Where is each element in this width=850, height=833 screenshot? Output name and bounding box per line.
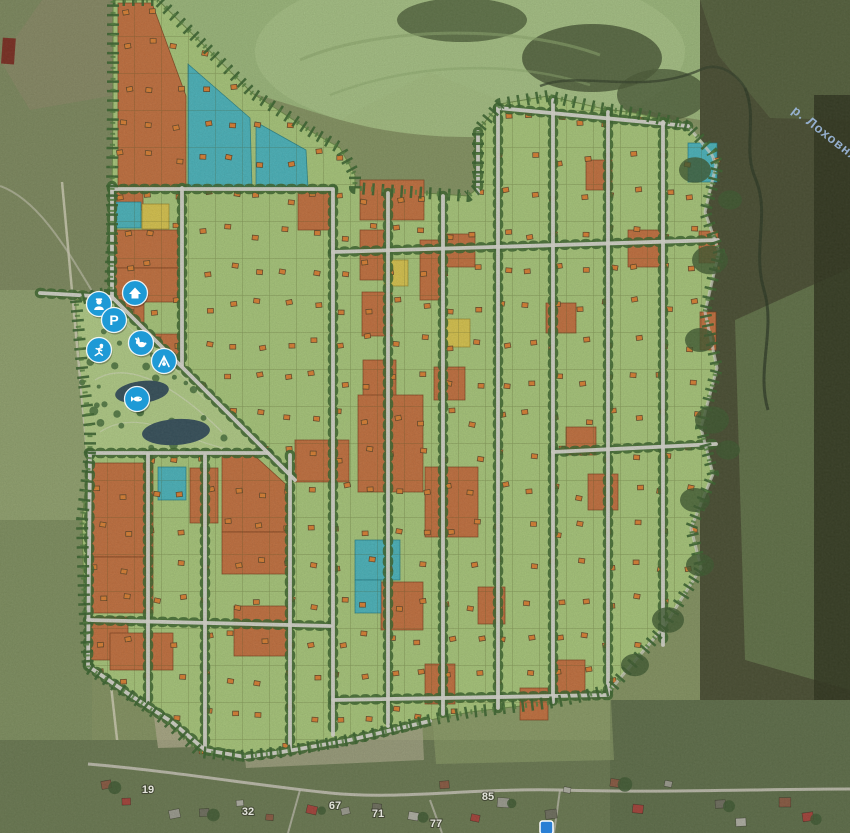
map-canvas: P р. Лоховня 193267717785 xyxy=(0,0,850,833)
house-number-label: 67 xyxy=(329,800,341,812)
house-number-label: 32 xyxy=(242,806,254,818)
house-number-label: 85 xyxy=(482,791,494,803)
satellite-grain-light xyxy=(0,0,850,833)
house-number-label: 19 xyxy=(142,784,154,796)
land-plot-masterplan-map: P р. Лоховня 193267717785 xyxy=(0,0,850,833)
partial-map-pin[interactable] xyxy=(540,821,553,833)
house-number-label: 77 xyxy=(430,818,442,830)
svg-text:P: P xyxy=(109,312,118,328)
house-number-label: 71 xyxy=(372,808,384,820)
